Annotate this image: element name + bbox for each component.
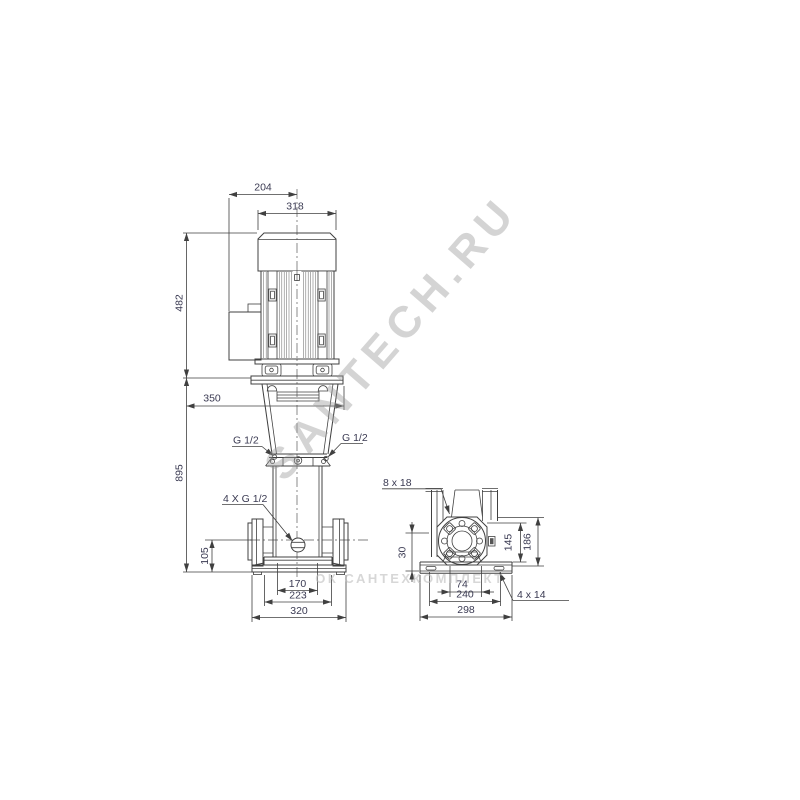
screenshot-canvas: 204 318 482 895 350 105 G 1/2 G 1/2 4 X … (0, 0, 800, 800)
motor-body (261, 271, 334, 359)
dim-port-center-height: 105 (199, 547, 211, 565)
side-flange-face (437, 517, 495, 565)
dim-base-top-width: 170 (289, 578, 307, 590)
label-plug-left: G 1/2 (233, 435, 259, 447)
dim-base-length: 298 (457, 604, 475, 616)
label-gauge-ports: 4 X G 1/2 (223, 493, 268, 505)
base-bolt-slot (426, 566, 436, 570)
dim-base-height: 30 (397, 547, 409, 559)
dim-port-to-port: 320 (290, 605, 308, 617)
pump-dimensional-drawing: 204 318 482 895 350 105 G 1/2 G 1/2 4 X … (0, 0, 800, 800)
dim-bolt-spacing: 240 (456, 589, 474, 601)
dim-motor-width: 318 (286, 201, 304, 213)
dim-fan-cover-width: 204 (254, 182, 272, 194)
dim-total-height: 895 (174, 464, 186, 482)
dim-base-mid-width: 223 (289, 590, 307, 602)
dim-service-width: 350 (203, 393, 221, 405)
dim-flange-height-outer: 186 (522, 533, 534, 551)
label-plug-right: G 1/2 (342, 432, 368, 444)
label-base-holes: 4 x 14 (517, 589, 546, 601)
label-flange-holes: 8 x 18 (383, 477, 412, 489)
side-view: 8 x 18 30 145 186 74 240 298 4 x 14 (382, 477, 569, 621)
watermark-horizontal: ОК САНТЕХКОМПЛЕКТ (315, 571, 505, 586)
base-bolt-slot (494, 566, 504, 570)
dim-flange-height-inner: 145 (503, 534, 515, 552)
drain-plug (291, 538, 305, 552)
dim-motor-height: 482 (174, 294, 186, 312)
terminal-box (229, 304, 261, 360)
